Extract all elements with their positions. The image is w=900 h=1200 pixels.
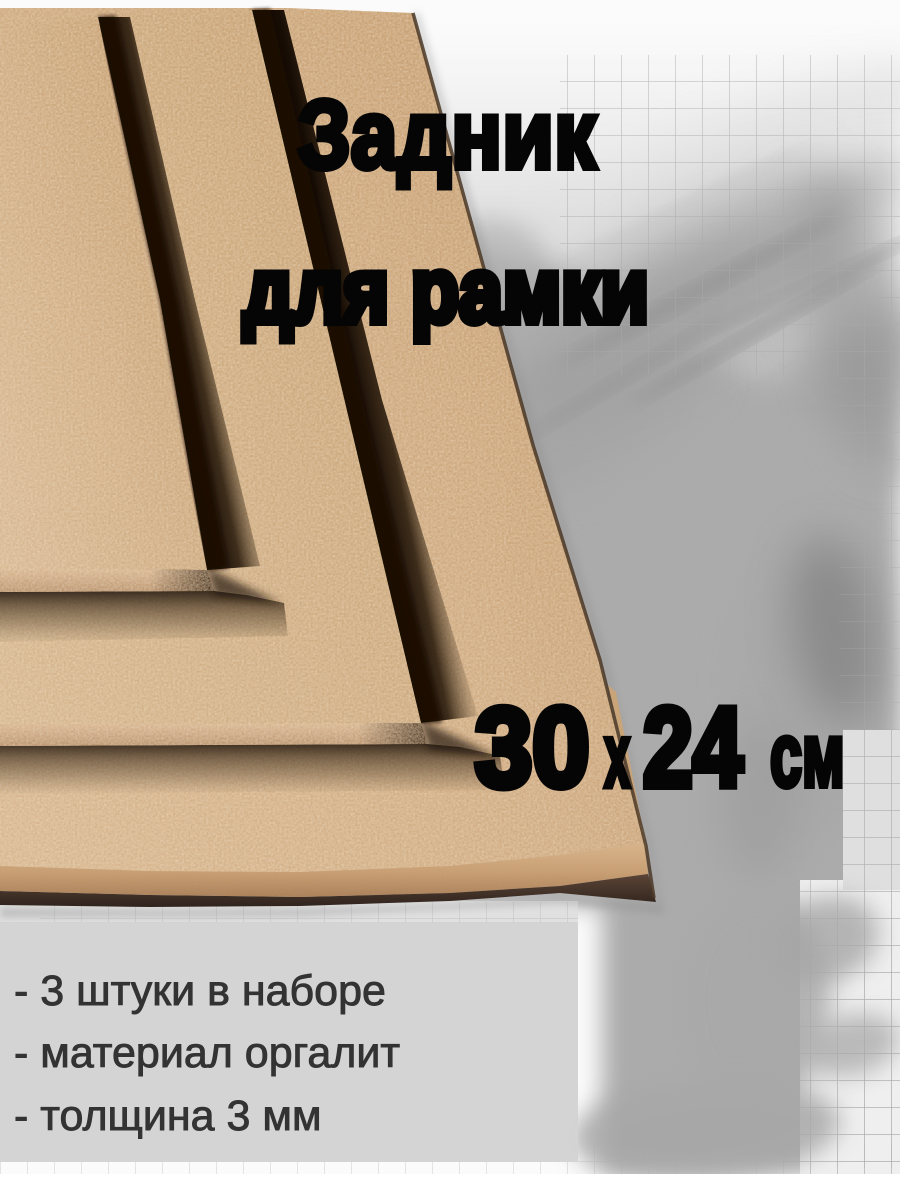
svg-text:30: 30: [475, 685, 590, 810]
svg-text:см: см: [770, 706, 845, 806]
svg-text:х: х: [605, 706, 630, 805]
svg-text:Задник: Задник: [298, 82, 597, 190]
svg-text:- 3 штуки в наборе: - 3 штуки в наборе: [14, 967, 386, 1015]
svg-text:- материал оргалит: - материал оргалит: [14, 1029, 400, 1077]
svg-text:для рамки: для рамки: [243, 239, 649, 342]
svg-text:- толщина 3 мм: - толщина 3 мм: [14, 1092, 322, 1140]
svg-text:24: 24: [643, 686, 743, 811]
